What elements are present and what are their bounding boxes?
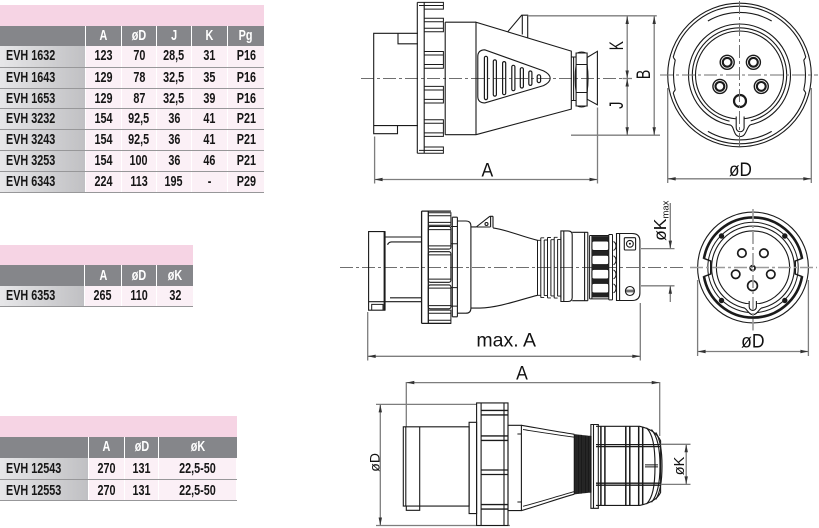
svg-text:øK: øK [672,456,688,475]
svg-text:A: A [516,362,528,384]
svg-text:B: B [633,70,655,79]
svg-text:A: A [481,158,493,180]
svg-text:K: K [606,41,628,51]
svg-text:øD: øD [366,453,382,472]
svg-text:øKmax: øKmax [650,200,672,241]
svg-text:øD: øD [741,330,764,352]
svg-text:J: J [605,102,628,109]
svg-text:max. A: max. A [476,330,536,352]
svg-text:øD: øD [729,158,752,180]
